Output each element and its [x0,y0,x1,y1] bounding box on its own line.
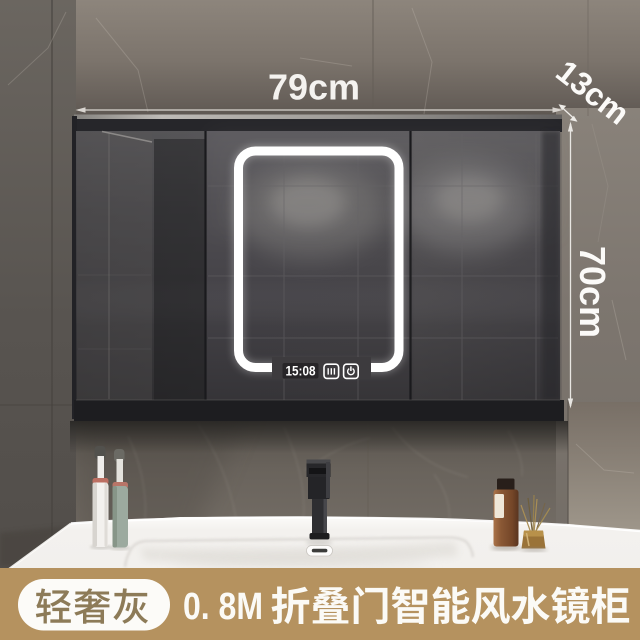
svg-text:15:08: 15:08 [286,363,316,379]
svg-text:79cm: 79cm [268,67,360,108]
svg-text:70cm: 70cm [572,246,613,338]
svg-text:0. 8M: 0. 8M [183,586,263,628]
